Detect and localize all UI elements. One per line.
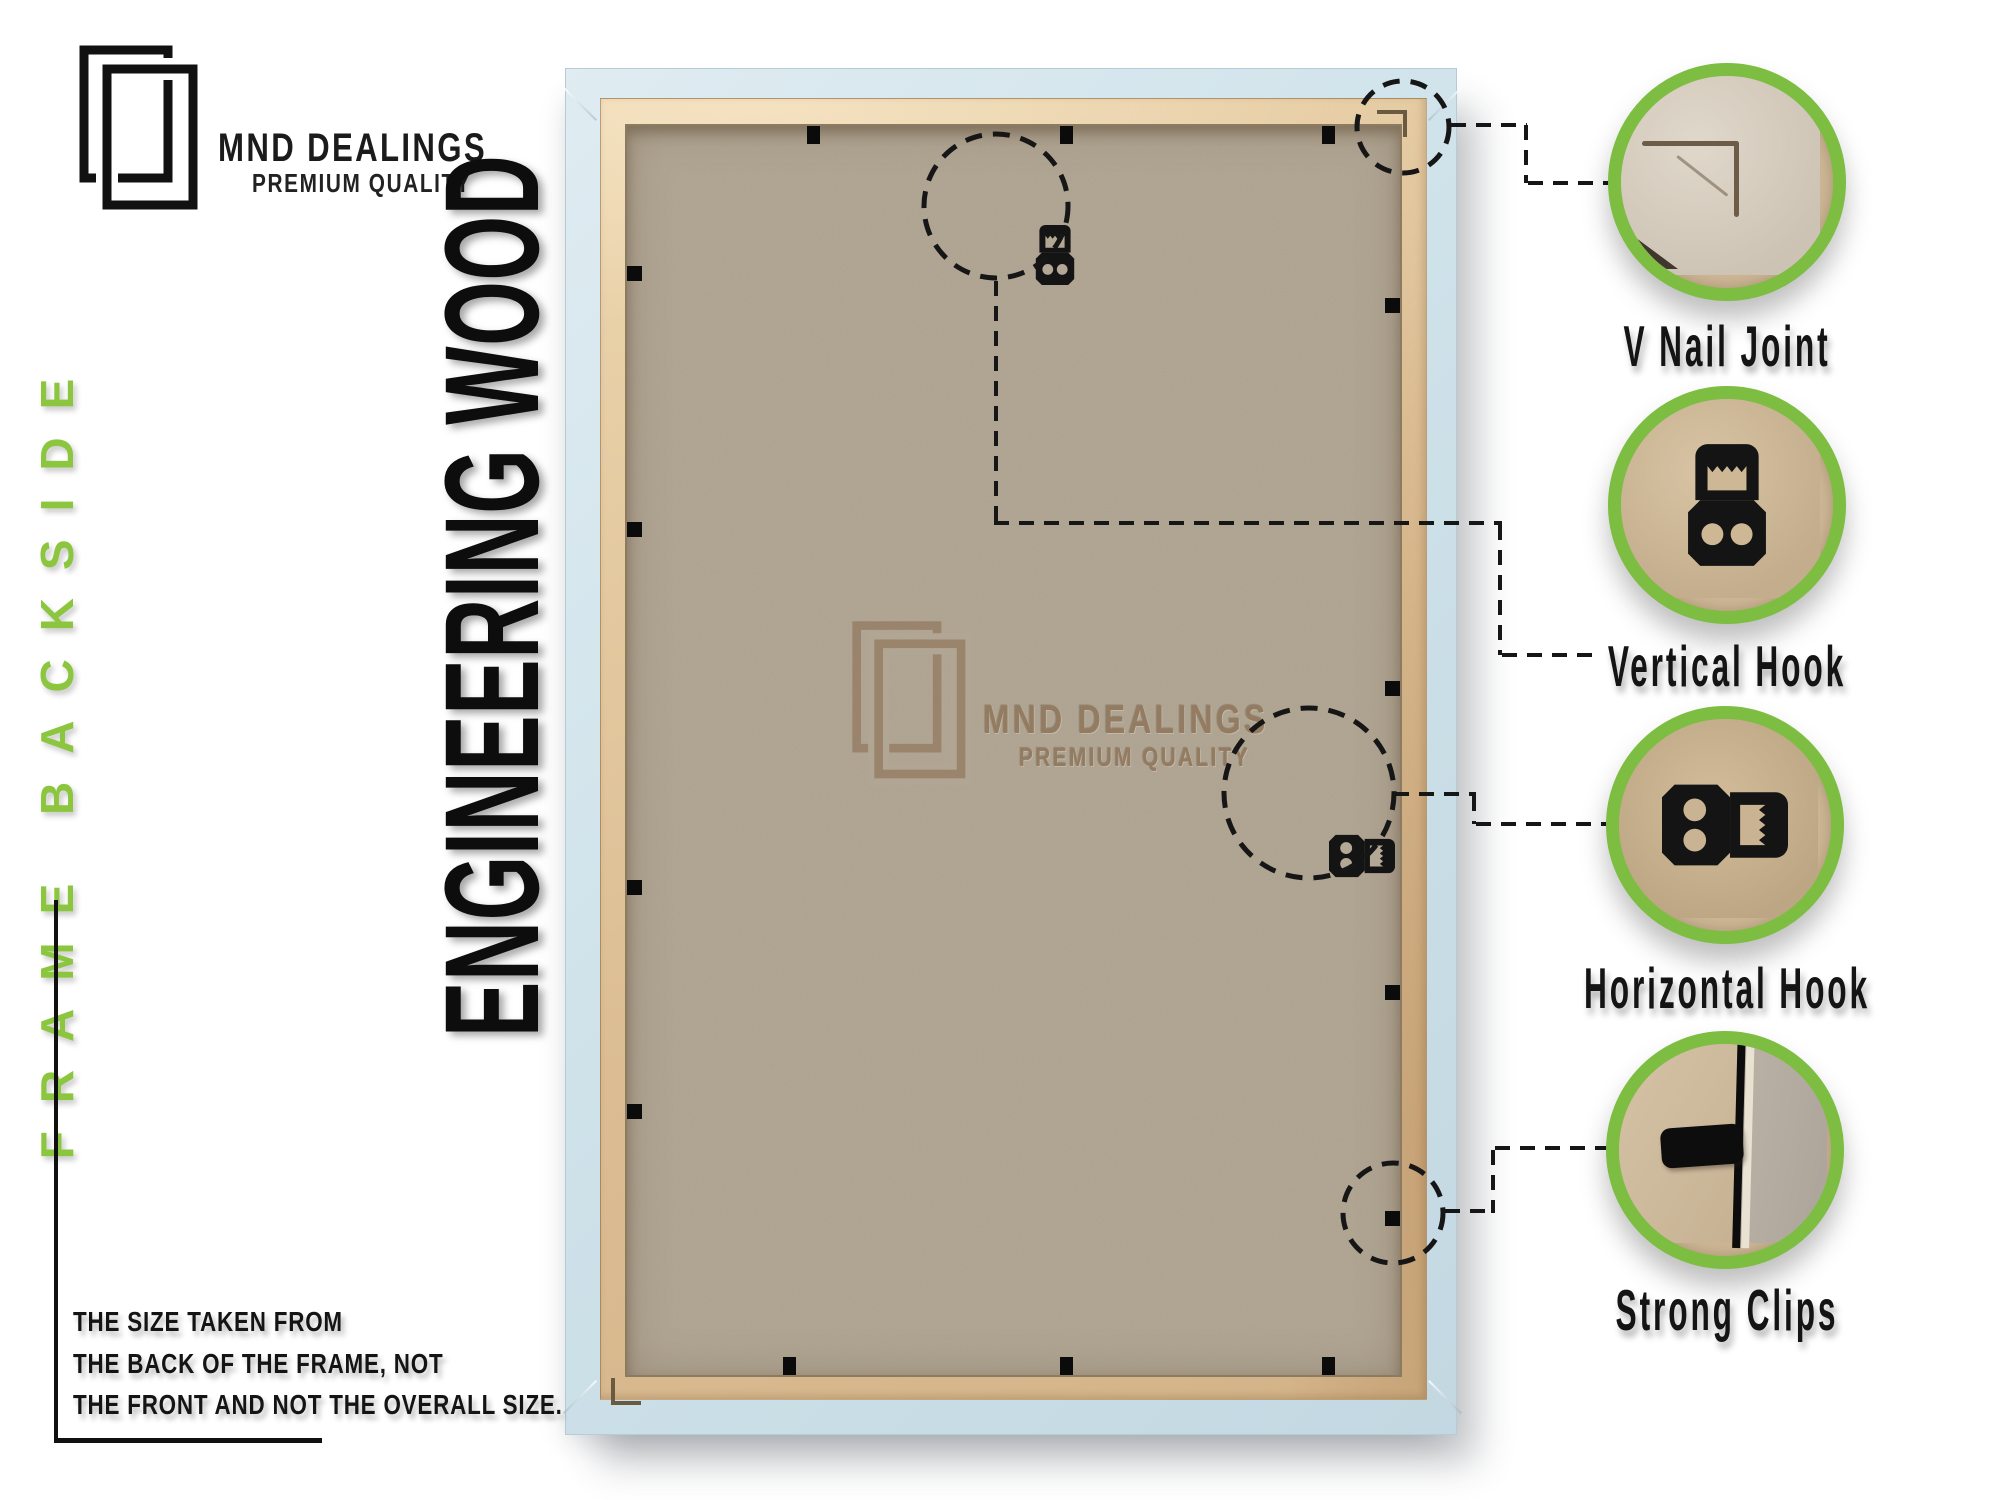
dashed-circle-corner [1352,76,1454,178]
size-note-line-1: THE SIZE TAKEN FROM [73,1306,343,1338]
callout-vertical-hook [1608,386,1846,624]
size-note-line-2: THE BACK OF THE FRAME, NOT [73,1348,443,1380]
connector-line [994,281,998,521]
frame-clip [627,522,642,537]
callout-label-vertical-hook: Vertical Hook [1576,634,1878,702]
vertical-hook-icon [1666,432,1788,578]
v-nail-crack [1642,141,1738,146]
frame-clip [1385,681,1400,696]
connector-line [1495,1146,1607,1150]
frame-clip [807,126,820,144]
connector-line [1394,792,1476,796]
frame-clip [783,1357,796,1375]
frame-clip [1385,985,1400,1000]
callout-strong-clips [1606,1031,1844,1269]
frame-clip [1322,126,1335,144]
frame-clip [1322,1357,1335,1375]
callout-v-nail-joint [1608,63,1846,301]
engineering-wood-banner: ENGINEERING WOOD [421,417,565,1037]
connector-line [1498,525,1502,655]
connector-line [1476,822,1606,826]
frame-clip [627,880,642,895]
size-note-line-3: THE FRONT AND NOT THE OVERALL SIZE. [73,1389,563,1421]
v-nail-photo [1608,63,1820,275]
brand-logo-frames-icon [76,44,218,226]
horizontal-hook-icon [1649,762,1801,888]
callout-label-horizontal-hook: Horizontal Hook [1576,956,1878,1024]
v-nail-crack [1676,155,1728,197]
strong-clip-icon [1660,1123,1745,1169]
v-nail-mark-icon [611,1378,641,1405]
frame-edge-surface [1737,1031,1827,1243]
connector-line [994,521,1502,525]
frame-clip [627,266,642,281]
dashed-circle-clip [1338,1158,1448,1268]
watermark-logo-icon [849,612,985,802]
note-rule-vertical [54,900,58,1442]
callout-label-strong-clips: Strong Clips [1576,1278,1878,1346]
connector-line [1491,1150,1495,1213]
connector-line [1451,123,1527,127]
dashed-circle-horizontal-hook [1218,702,1400,884]
dashed-circle-vertical-hook [918,128,1074,284]
frame-clip [1385,298,1400,313]
product-infographic: MND DEALINGS PREMIUM QUALITY FRAME BACKS… [0,0,2000,1500]
connector-line [1445,1209,1495,1213]
corner-shadow [1616,213,1678,269]
callout-horizontal-hook [1606,706,1844,944]
callout-label-v-nail-joint: V Nail Joint [1576,314,1878,382]
frame-clip [627,1104,642,1119]
v-nail-crack [1734,141,1739,217]
connector-line [1524,125,1528,183]
connector-line [1472,796,1476,824]
connector-line [1528,181,1610,185]
frame-clip [1060,1357,1073,1375]
watermark-tagline: PREMIUM QUALITY [1019,742,1250,773]
note-rule-horizontal [54,1438,322,1443]
